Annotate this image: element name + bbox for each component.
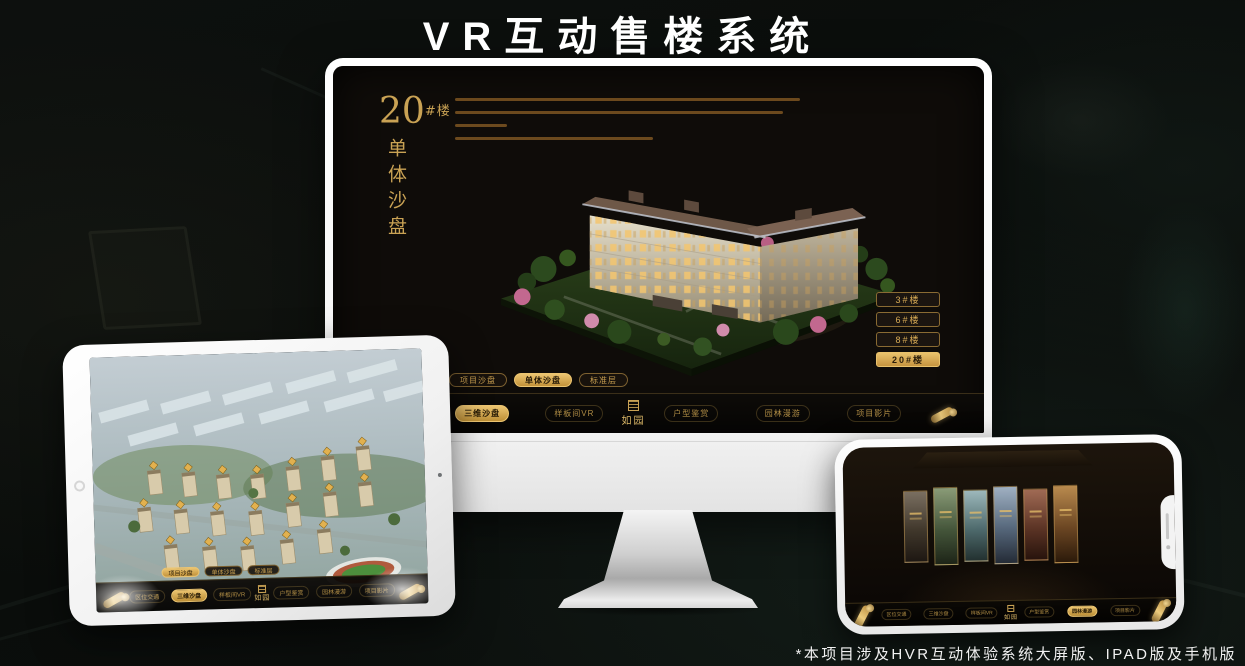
nav-item[interactable]: 园林漫游 [1067,605,1097,617]
sub-tab[interactable]: 标准层 [247,564,279,575]
phone-nav-bar: 区位交通三维沙盘样板间VR 如园 户型鉴赏园林漫游项目影片 [845,597,1176,627]
nav-item[interactable]: 园林漫游 [756,405,810,422]
nav-item[interactable]: 项目影片 [1110,605,1140,617]
tablet-home-button[interactable] [74,480,85,491]
nav-item[interactable]: 三维沙盘 [171,588,207,602]
scene-panel[interactable] [1053,485,1078,563]
brand-logo: 如园 [254,584,270,602]
background-buildings [990,60,1170,180]
nav-item[interactable]: 户型鉴赏 [664,405,718,422]
tablet-device: 项目沙盘单体沙盘标准层 区位交通三维沙盘样板间VR 如园 户型鉴赏园林漫游项目影… [62,335,456,627]
sub-tab[interactable]: 单体沙盘 [204,565,242,576]
section-heading: 20#楼 单体沙盘 [379,94,451,256]
building-selector: 3#楼6#楼8#楼20#楼 [876,292,940,367]
brand-logo: 如园 [622,400,646,427]
nav-item[interactable]: 样板间VR [545,405,603,422]
phone-notch [1160,495,1175,569]
sub-tab[interactable]: 项目沙盘 [161,567,199,578]
nav-item[interactable]: 样板间VR [966,607,998,619]
nav-item[interactable]: 项目影片 [847,405,901,422]
camera-icon [1166,545,1170,549]
sub-tab[interactable]: 单体沙盘 [514,373,572,387]
section-subtitle-vertical: 单体沙盘 [383,138,411,256]
scroll-menu-icon[interactable] [853,604,871,627]
background-foliage [1120,200,1245,420]
nav-item[interactable]: 园林漫游 [316,584,352,598]
scene-panel[interactable] [903,490,928,562]
scene-panel[interactable] [993,486,1018,564]
phone-device: 区位交通三维沙盘样板间VR 如园 户型鉴赏园林漫游项目影片 [834,434,1184,635]
building-button[interactable]: 3#楼 [876,292,940,307]
building-button[interactable]: 6#楼 [876,312,940,327]
tablet-camera-icon [438,473,442,477]
page-title: VR互动售楼系统 [0,4,1245,62]
nav-item[interactable]: 户型鉴赏 [273,586,309,600]
nav-item[interactable]: 户型鉴赏 [1024,606,1054,618]
phone-frame: 区位交通三维沙盘样板间VR 如园 户型鉴赏园林漫游项目影片 [834,434,1184,635]
nav-item[interactable]: 三维沙盘 [924,608,954,620]
scene-panel[interactable] [933,487,958,565]
brand-logo: 如园 [1004,604,1018,620]
sub-tab[interactable]: 项目沙盘 [449,373,507,387]
nav-item[interactable]: 样板间VR [213,587,252,601]
background-signboard [88,226,202,330]
sub-tab[interactable]: 标准层 [579,373,628,387]
scene-panel[interactable] [1023,488,1048,560]
scroll-menu-icon[interactable] [102,591,127,610]
block-number-suffix: #楼 [425,104,451,119]
tablet-frame: 项目沙盘单体沙盘标准层 区位交通三维沙盘样板间VR 如园 户型鉴赏园林漫游项目影… [62,335,456,627]
scroll-menu-icon[interactable] [1150,599,1168,624]
monitor-stand [558,510,758,608]
nav-item[interactable]: 项目影片 [359,583,395,597]
building-button[interactable]: 8#楼 [876,332,940,347]
scroll-menu-icon[interactable] [930,406,955,424]
sub-tabs: 项目沙盘单体沙盘标准层 [449,373,628,387]
scene-panels [903,484,1078,567]
speaker-icon [1166,513,1169,539]
brand-emblem-icon [258,584,266,592]
description-lines [455,98,800,150]
building-button[interactable]: 20#楼 [876,352,940,367]
block-number: 20#楼 [379,94,451,130]
phone-screen: 区位交通三维沙盘样板间VR 如园 户型鉴赏园林漫游项目影片 [842,442,1176,627]
nav-item[interactable]: 三维沙盘 [455,405,509,422]
scene-panel[interactable] [963,489,988,561]
pavilion-roof-silhouette [913,450,1093,469]
building-render [481,158,915,380]
nav-item[interactable]: 区位交通 [881,609,911,621]
scroll-menu-icon[interactable] [398,582,423,601]
nav-item[interactable]: 区位交通 [129,590,165,604]
footnote: *本项目涉及HVR互动体验系统大屏版、IPAD版及手机版 [796,643,1237,664]
tablet-screen: 项目沙盘单体沙盘标准层 区位交通三维沙盘样板间VR 如园 户型鉴赏园林漫游项目影… [90,348,429,612]
brand-emblem-icon [628,400,639,411]
